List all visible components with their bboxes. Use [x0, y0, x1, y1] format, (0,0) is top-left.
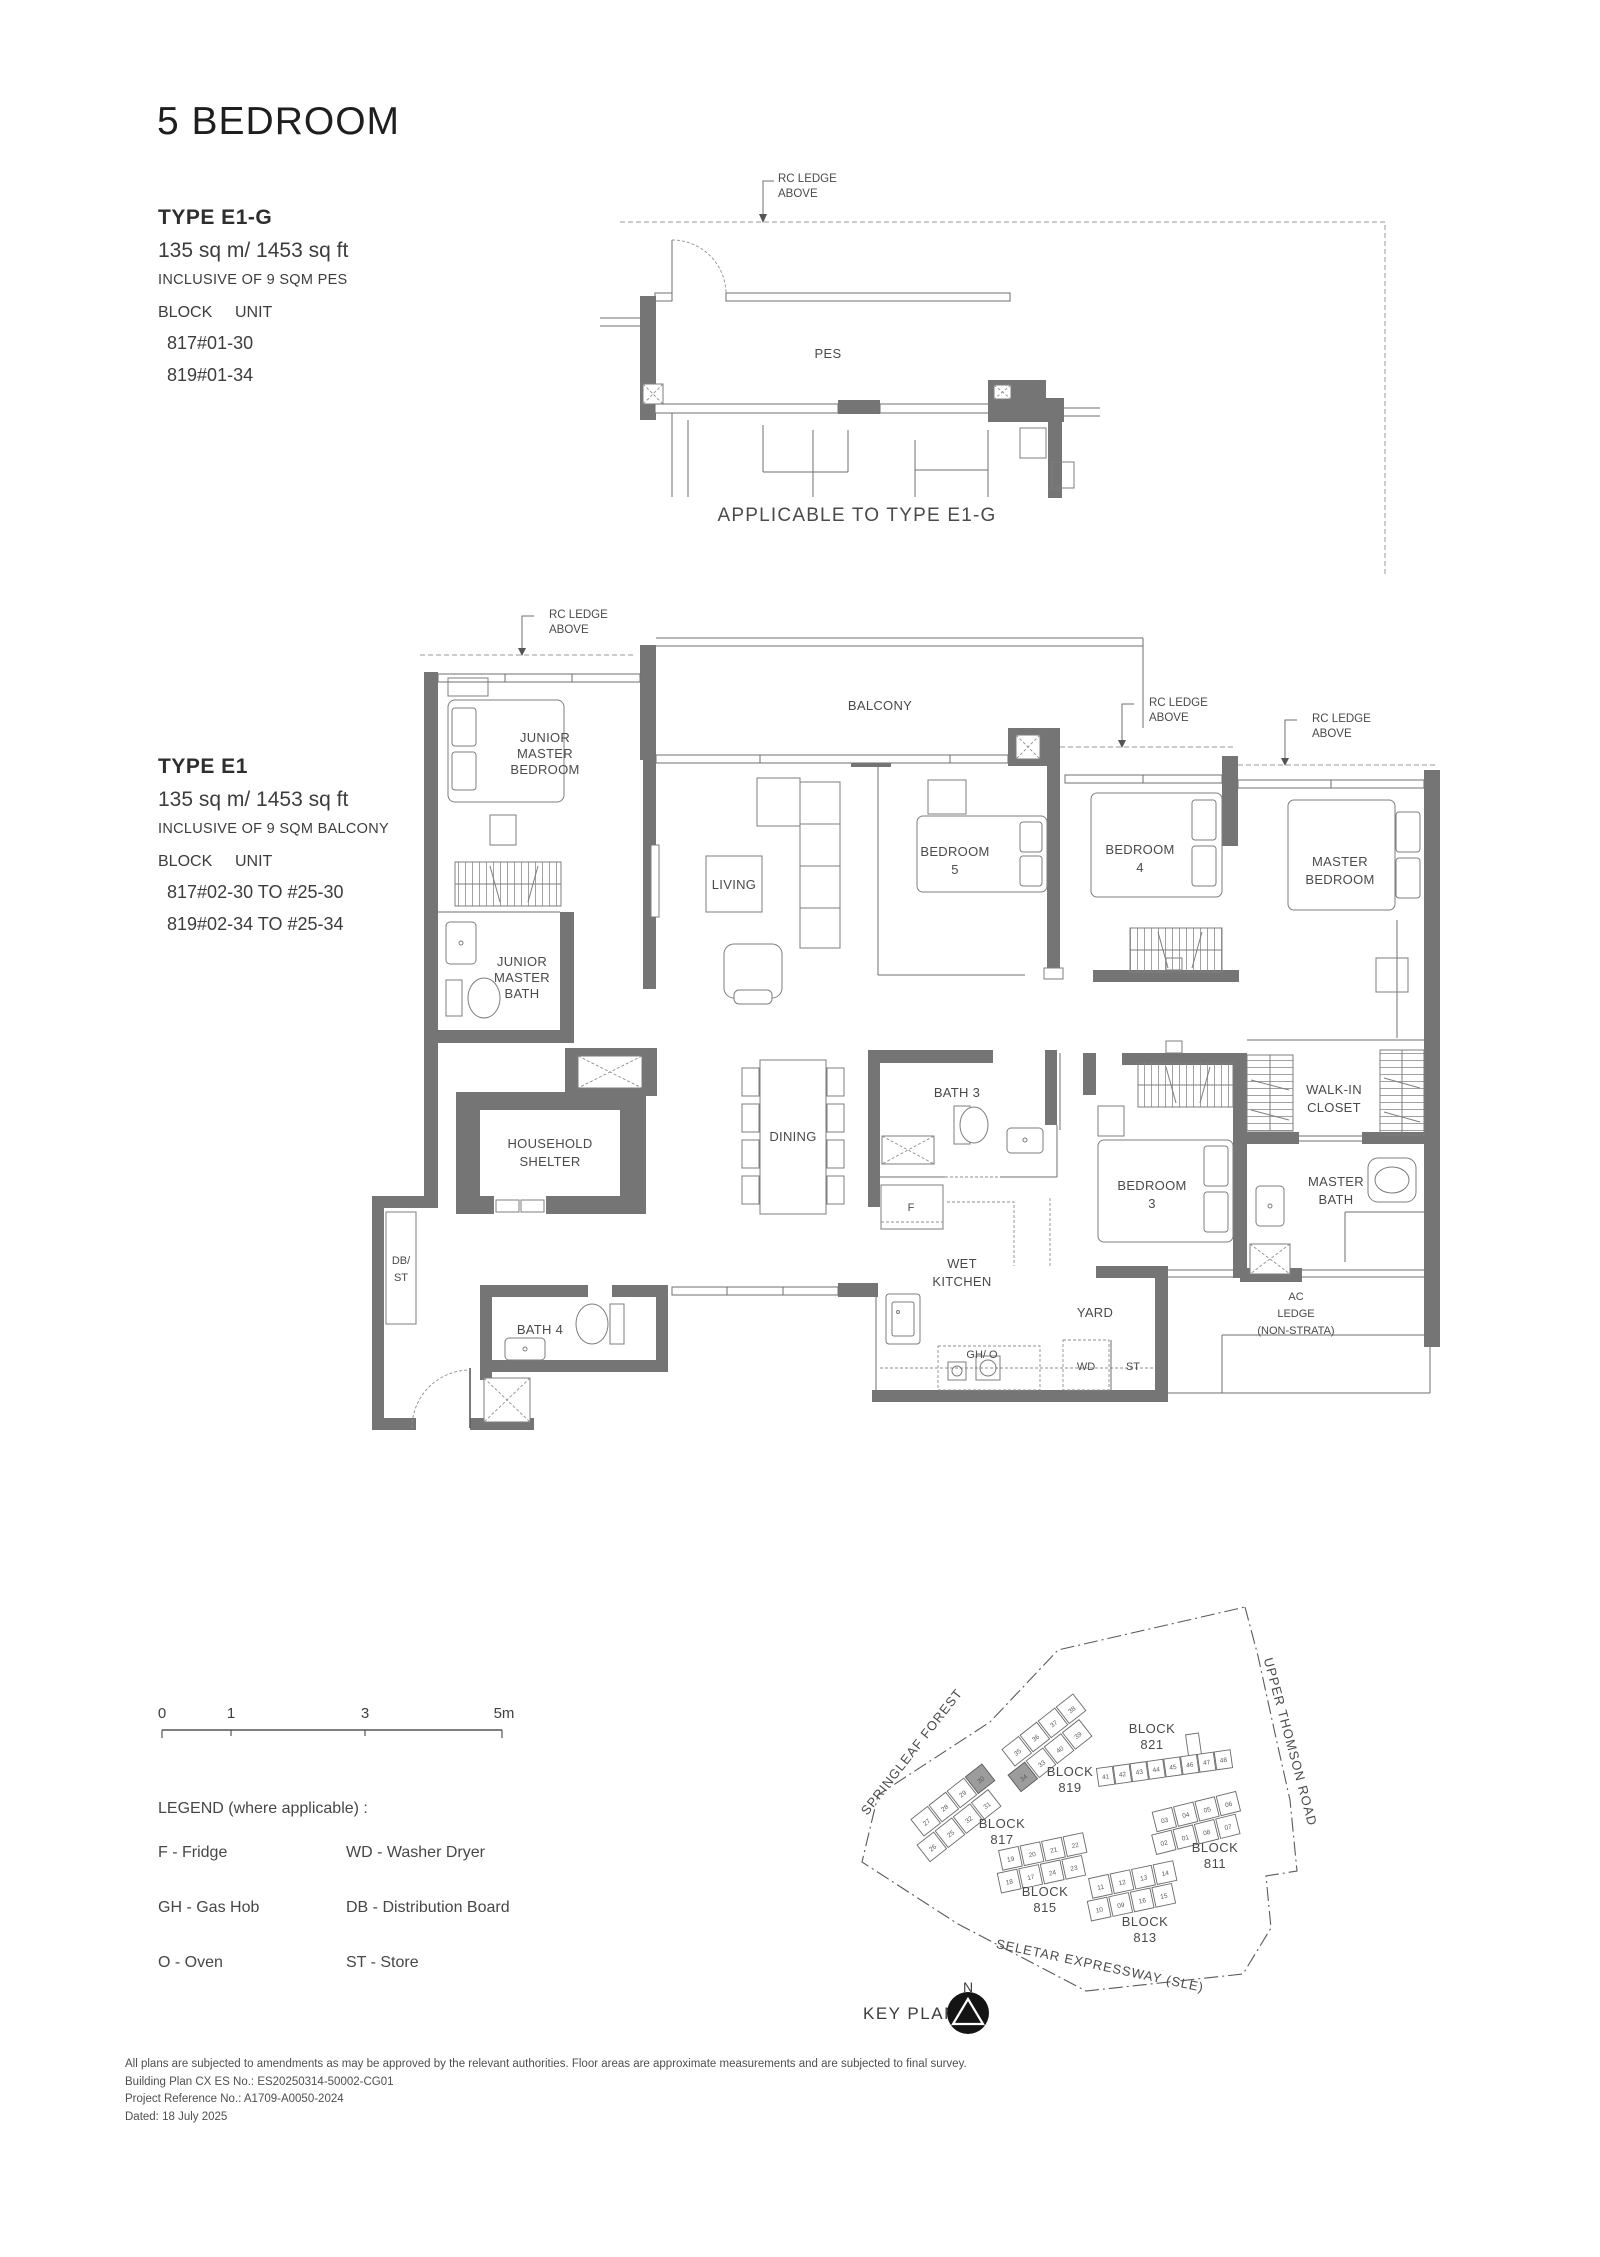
rc-ledge-label: ABOVE: [1149, 712, 1189, 724]
bath3: BATH 3: [934, 1085, 1043, 1153]
room-label: DINING: [769, 1129, 816, 1144]
unit-header: UNIT: [235, 853, 272, 870]
ac-ledge: AC LEDGE (NON-STRATA): [1257, 1291, 1334, 1337]
scale-tick: 0: [158, 1705, 166, 1722]
room-label: BATH: [505, 986, 540, 1001]
block-number: 821: [1140, 1737, 1163, 1752]
entrance-door: [412, 1368, 470, 1428]
key-plan: SPRINGLEAF FOREST UPPER THOMSON ROAD SEL…: [820, 1580, 1440, 2050]
appliance-label-washerdryer: WD: [1077, 1361, 1095, 1373]
unit-number: 47: [1203, 1759, 1212, 1767]
room-label: BATH 4: [517, 1322, 563, 1337]
scale-tick: 5m: [494, 1705, 515, 1722]
room-label: CLOSET: [1307, 1100, 1361, 1115]
legend-item: F - Fridge: [158, 1844, 346, 1862]
block-word: BLOCK: [979, 1816, 1026, 1831]
unit-number: 45: [1169, 1764, 1178, 1772]
bath4: BATH 4: [505, 1304, 624, 1360]
living-furniture: LIVING: [651, 778, 840, 1004]
scale-tick: 3: [361, 1705, 369, 1722]
unit-value: #01-30: [197, 333, 253, 353]
room-label: BEDROOM: [920, 844, 989, 859]
pes-interior-lines: [672, 413, 1074, 497]
rc-ledge-label: ABOVE: [549, 624, 589, 636]
footer-line: Project Reference No.: A1709-A0050-2024: [125, 2091, 967, 2109]
legend-item: DB - Distribution Board: [346, 1899, 510, 1917]
scale-bar: 0 1 3 5m: [140, 1690, 540, 1750]
room-label: AC: [1288, 1291, 1303, 1303]
unit-number: 43: [1135, 1769, 1144, 1777]
block-unit-header: BLOCKUNIT: [158, 853, 389, 871]
block-unit-header: BLOCKUNIT: [158, 304, 348, 322]
appliance-label-gashob-oven: GH/ O: [966, 1349, 998, 1361]
room-label: WET: [947, 1256, 977, 1271]
room-label: LIVING: [712, 877, 756, 892]
unit-header: UNIT: [235, 304, 272, 321]
applicable-caption: APPLICABLE TO TYPE E1-G: [718, 505, 997, 526]
north-compass-icon: [947, 1992, 989, 2034]
main-unit-plan: RC LEDGE ABOVE RC LEDGE ABOVE RC LEDGE A…: [360, 575, 1485, 1470]
unit-number: 46: [1186, 1761, 1195, 1769]
db-st-closet: DB/ ST: [386, 1212, 416, 1324]
page-title: 5 BEDROOM: [157, 100, 400, 144]
room-label: MASTER: [1312, 854, 1368, 869]
unit-value: #02-30 TO #25-30: [197, 882, 343, 902]
legend-title: LEGEND (where applicable) :: [158, 1800, 510, 1818]
room-label: ST: [394, 1272, 408, 1284]
type-area: 135 sq m/ 1453 sq ft: [158, 239, 348, 263]
block-number: 817: [990, 1832, 1013, 1847]
type-inclusive: INCLUSIVE OF 9 SQM BALCONY: [158, 821, 389, 837]
footer-line: Building Plan CX ES No.: ES20250314-5000…: [125, 2074, 967, 2092]
road-label-seletar: SELETAR EXPRESSWAY (SLE): [995, 1936, 1206, 1995]
room-label: BALCONY: [848, 698, 912, 713]
unit-number: 42: [1118, 1771, 1127, 1779]
cluster-block-813: 11 12 13 14 10 09 16 15: [1083, 1861, 1182, 1921]
disclaimer-footer: All plans are subjected to amendments as…: [125, 2056, 967, 2126]
room-label: HOUSEHOLD: [507, 1136, 592, 1151]
scale-tick: 1: [227, 1705, 235, 1722]
footer-line: All plans are subjected to amendments as…: [125, 2056, 967, 2074]
block-number: 815: [1033, 1900, 1056, 1915]
block-value: 819: [158, 914, 197, 934]
room-label: WALK-IN: [1306, 1082, 1362, 1097]
room-label: BEDROOM: [1117, 1178, 1186, 1193]
room-label: YARD: [1077, 1305, 1113, 1320]
room-label: MASTER: [494, 970, 550, 985]
room-label: KITCHEN: [932, 1274, 991, 1289]
legend-item: O - Oven: [158, 1954, 346, 1972]
spec-type-e1g: TYPE E1-G 135 sq m/ 1453 sq ft INCLUSIVE…: [158, 206, 348, 386]
type-name: TYPE E1-G: [158, 206, 348, 230]
legend-item: WD - Washer Dryer: [346, 1844, 510, 1862]
room-label: 5: [951, 862, 959, 877]
block-unit-row: 817#01-30: [158, 333, 348, 354]
room-label-pes: PES: [815, 346, 842, 361]
block-number: 819: [1058, 1780, 1081, 1795]
block-word: BLOCK: [1022, 1884, 1069, 1899]
unit-number: 41: [1102, 1773, 1111, 1781]
floorplan-page: 5 BEDROOM TYPE E1-G 135 sq m/ 1453 sq ft…: [0, 0, 1600, 2257]
block-value: 819: [158, 365, 197, 385]
room-label: DB/: [392, 1255, 411, 1267]
legend: LEGEND (where applicable) : F - Fridge W…: [158, 1800, 510, 1972]
block-unit-row: 819#01-34: [158, 365, 348, 386]
footer-line: Dated: 18 July 2025: [125, 2109, 967, 2127]
room-label: 4: [1136, 860, 1144, 875]
dining: DINING: [742, 1060, 844, 1214]
rc-ledge-label: RC LEDGE: [549, 609, 608, 621]
room-label: LEDGE: [1277, 1308, 1314, 1320]
bedroom5: BEDROOM 5: [917, 780, 1047, 892]
type-inclusive: INCLUSIVE OF 9 SQM PES: [158, 272, 348, 288]
legend-item: ST - Store: [346, 1954, 510, 1972]
type-name: TYPE E1: [158, 755, 389, 779]
block-header: BLOCK: [158, 853, 235, 871]
type-area: 135 sq m/ 1453 sq ft: [158, 788, 389, 812]
block-word: BLOCK: [1129, 1721, 1176, 1736]
room-label: BEDROOM: [510, 762, 579, 777]
room-label: BEDROOM: [1105, 842, 1174, 857]
block-word: BLOCK: [1192, 1840, 1239, 1855]
room-label: 3: [1148, 1196, 1156, 1211]
block-unit-row: 819#02-34 TO #25-34: [158, 914, 389, 935]
block-unit-row: 817#02-30 TO #25-30: [158, 882, 389, 903]
block-number: 813: [1133, 1930, 1156, 1945]
room-label: (NON-STRATA): [1257, 1325, 1334, 1337]
rc-ledge-annotations: RC LEDGE ABOVE RC LEDGE ABOVE RC LEDGE A…: [420, 609, 1438, 766]
appliance-label-fridge: F: [908, 1202, 915, 1214]
rc-ledge-label: RC LEDGE: [1149, 697, 1208, 709]
block-header: BLOCK: [158, 304, 235, 322]
appliance-label-store: ST: [1126, 1361, 1140, 1373]
rc-ledge-label: RC LEDGE: [1312, 713, 1371, 725]
pes-partial-plan: RC LEDGE ABOVE PES AP: [590, 150, 1150, 550]
rc-ledge-label: ABOVE: [778, 188, 818, 200]
unit-number: 44: [1152, 1766, 1161, 1774]
block-value: 817: [158, 882, 197, 902]
key-plan-label: KEY PLAN: [863, 2004, 958, 2023]
unit-value: #02-34 TO #25-34: [197, 914, 343, 934]
rc-ledge-label: RC LEDGE: [778, 173, 837, 185]
room-label: MASTER: [517, 746, 573, 761]
room-label: BATH: [1319, 1192, 1354, 1207]
unit-number: 48: [1219, 1757, 1228, 1765]
room-label: BATH 3: [934, 1085, 980, 1100]
bedroom4: BEDROOM 4: [1091, 793, 1222, 972]
block-value: 817: [158, 333, 197, 353]
pes-walls: [600, 240, 1100, 498]
block-word: BLOCK: [1047, 1764, 1094, 1779]
legend-item: GH - Gas Hob: [158, 1899, 346, 1917]
room-label: SHELTER: [519, 1154, 580, 1169]
spec-type-e1: TYPE E1 135 sq m/ 1453 sq ft INCLUSIVE O…: [158, 755, 389, 935]
rc-ledge-label: ABOVE: [1312, 728, 1352, 740]
room-label: JUNIOR: [520, 730, 570, 745]
unit-value: #01-34: [197, 365, 253, 385]
room-label: BEDROOM: [1305, 872, 1374, 887]
master-bath: MASTER BATH: [1256, 1158, 1416, 1226]
block-number: 811: [1204, 1856, 1226, 1871]
master-bedroom: MASTER BEDROOM: [1288, 800, 1420, 1038]
room-label: MASTER: [1308, 1174, 1364, 1189]
walk-in-closet: WALK-IN CLOSET: [1247, 1050, 1424, 1135]
bedroom3: BEDROOM 3: [1098, 1063, 1233, 1242]
block-word: BLOCK: [1122, 1914, 1169, 1929]
room-label: JUNIOR: [497, 954, 547, 969]
